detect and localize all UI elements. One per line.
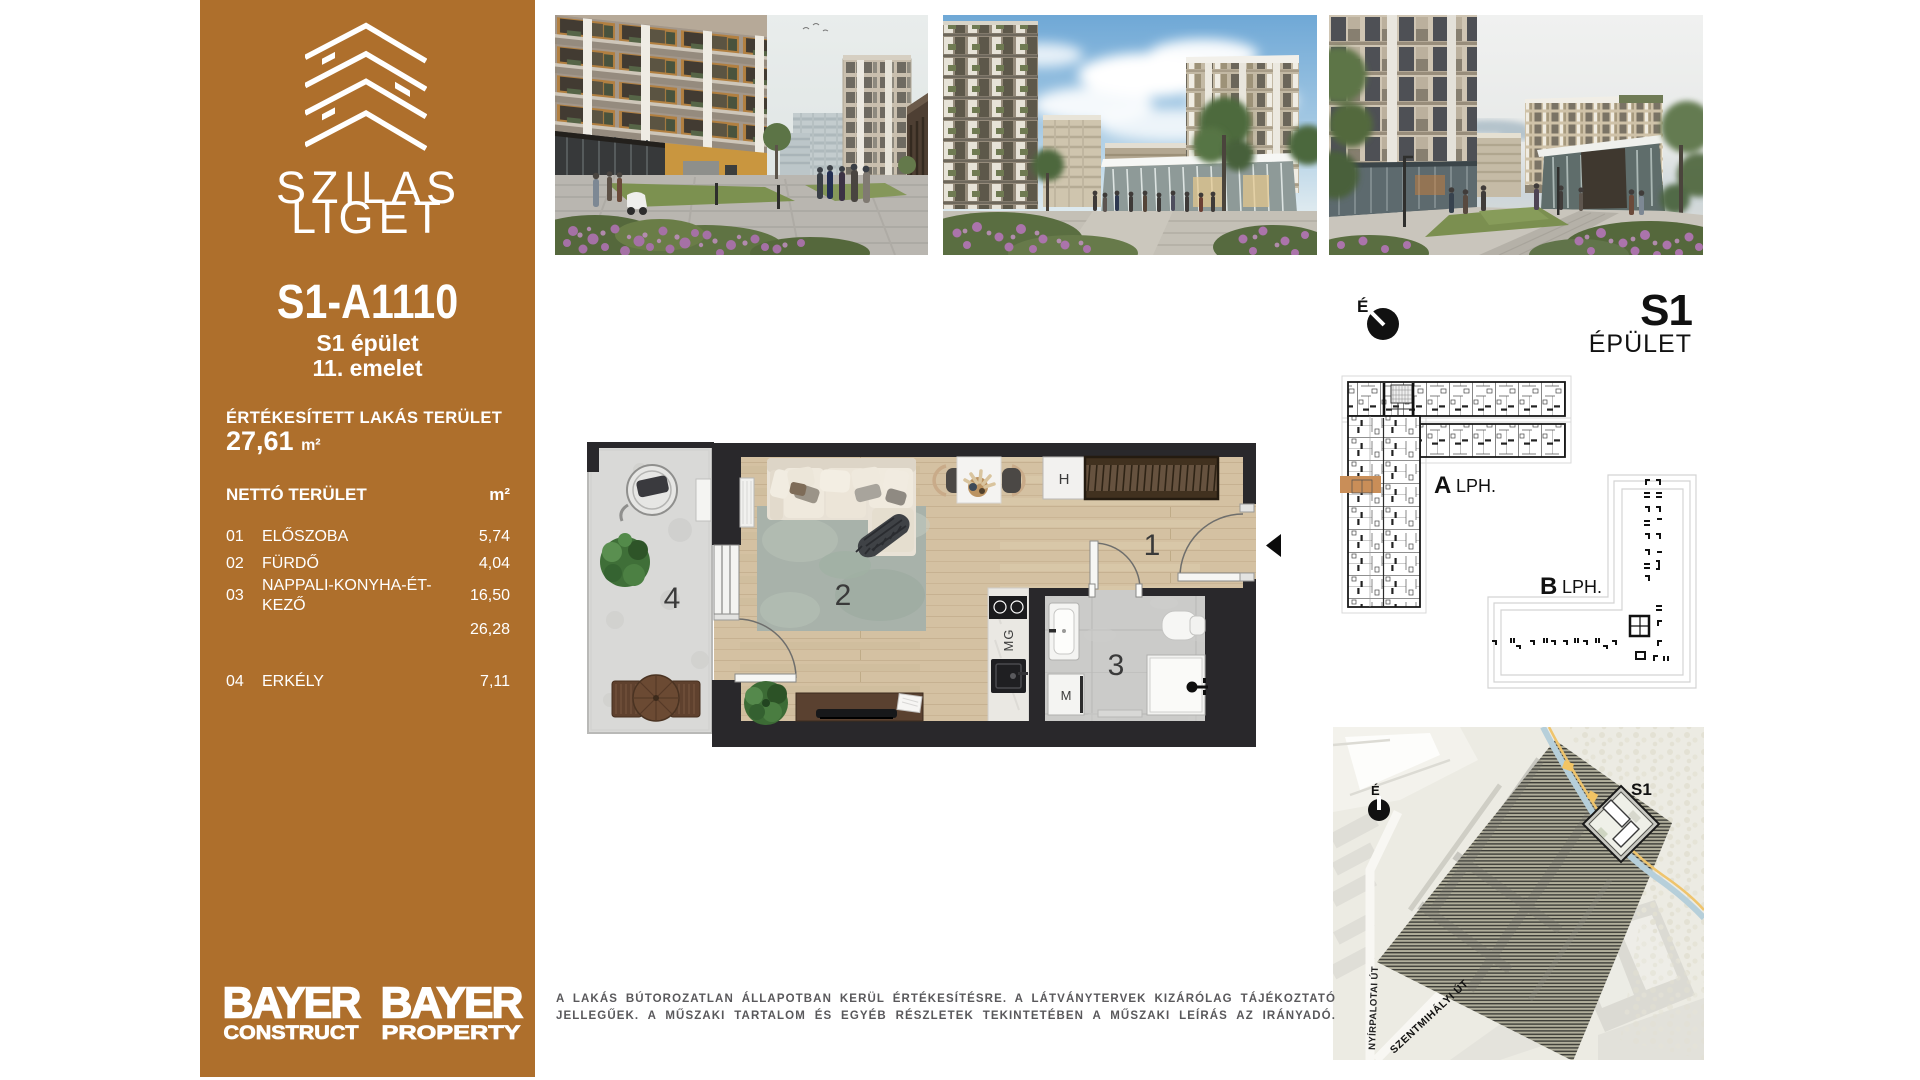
svg-text:CONSTRUCT: CONSTRUCT: [224, 1023, 359, 1043]
svg-text:3: 3: [1108, 649, 1125, 682]
svg-text:PROPERTY: PROPERTY: [382, 1023, 521, 1043]
svg-text:S1: S1: [1640, 286, 1692, 335]
svg-text:H: H: [1059, 471, 1070, 488]
svg-text:LPH.: LPH.: [1562, 577, 1602, 597]
svg-text:BAYER: BAYER: [222, 983, 360, 1027]
svg-text:É: É: [1371, 783, 1380, 798]
svg-text:LPH.: LPH.: [1456, 476, 1496, 496]
svg-text:A: A: [1434, 472, 1451, 499]
svg-text:S1: S1: [1631, 780, 1652, 799]
svg-text:M: M: [1061, 688, 1072, 703]
svg-text:BAYER: BAYER: [381, 983, 523, 1027]
svg-text:2: 2: [835, 579, 852, 612]
svg-text:B: B: [1540, 573, 1557, 600]
svg-text:1: 1: [1144, 529, 1161, 562]
svg-text:MG: MG: [1001, 629, 1016, 652]
svg-text:ÉPÜLET: ÉPÜLET: [1589, 329, 1692, 358]
svg-text:É: É: [1357, 297, 1368, 316]
svg-text:4: 4: [664, 582, 681, 615]
